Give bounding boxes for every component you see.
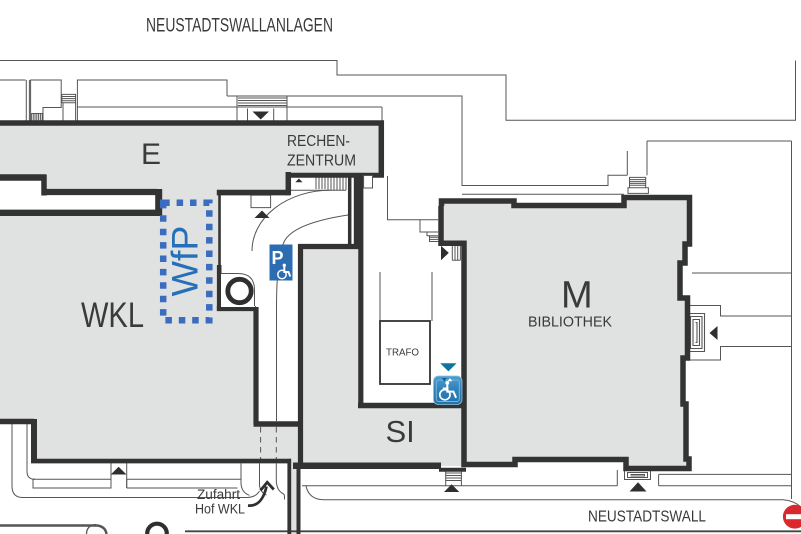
svg-text:SI: SI — [386, 414, 415, 449]
svg-text:RECHEN-: RECHEN- — [287, 133, 350, 150]
svg-text:M: M — [561, 275, 593, 317]
svg-text:E: E — [141, 138, 161, 171]
svg-text:WfP: WfP — [163, 226, 205, 297]
svg-text:TRAFO: TRAFO — [386, 347, 419, 359]
svg-text:BIBLIOTHEK: BIBLIOTHEK — [528, 315, 612, 331]
svg-text:P: P — [272, 248, 284, 268]
svg-text:WKL: WKL — [81, 296, 144, 335]
svg-text:Hof WKL: Hof WKL — [195, 502, 245, 517]
svg-text:Zufahrt: Zufahrt — [197, 487, 240, 502]
svg-text:ZENTRUM: ZENTRUM — [287, 153, 356, 170]
svg-text:NEUSTADTSWALLANLAGEN: NEUSTADTSWALLANLAGEN — [146, 16, 333, 37]
svg-text:NEUSTADTSWALL: NEUSTADTSWALL — [588, 509, 706, 526]
